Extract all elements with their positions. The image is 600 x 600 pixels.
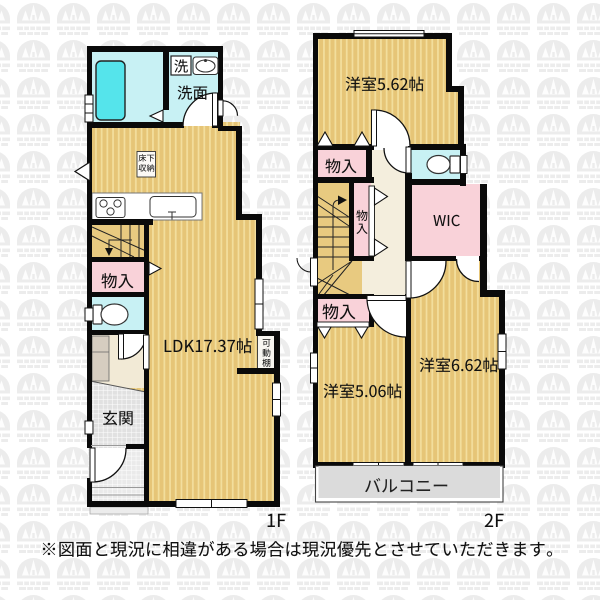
svg-text:LDK17.37帖: LDK17.37帖 [163,333,252,357]
svg-text:洋室6.62帖: 洋室6.62帖 [419,352,498,376]
svg-text:1F: 1F [266,507,286,533]
svg-text:WIC: WIC [433,210,461,231]
svg-text:物入: 物入 [101,268,134,292]
svg-text:物入: 物入 [325,153,357,177]
svg-text:入: 入 [356,220,368,237]
svg-text:2F: 2F [484,507,504,533]
svg-text:玄関: 玄関 [102,405,134,429]
svg-text:洗面: 洗面 [177,82,208,104]
svg-text:収納: 収納 [138,162,154,174]
svg-text:棚: 棚 [262,356,271,369]
svg-text:洗: 洗 [174,56,189,77]
svg-text:※図面と現況に相違がある場合は現況優先とさせていただきます。: ※図面と現況に相違がある場合は現況優先とさせていただきます。 [40,536,563,561]
svg-text:バルコニー: バルコニー [364,472,449,497]
svg-text:洋室5.06帖: 洋室5.06帖 [323,378,402,402]
svg-text:物入: 物入 [322,298,356,323]
svg-text:洋室5.62帖: 洋室5.62帖 [345,71,424,95]
